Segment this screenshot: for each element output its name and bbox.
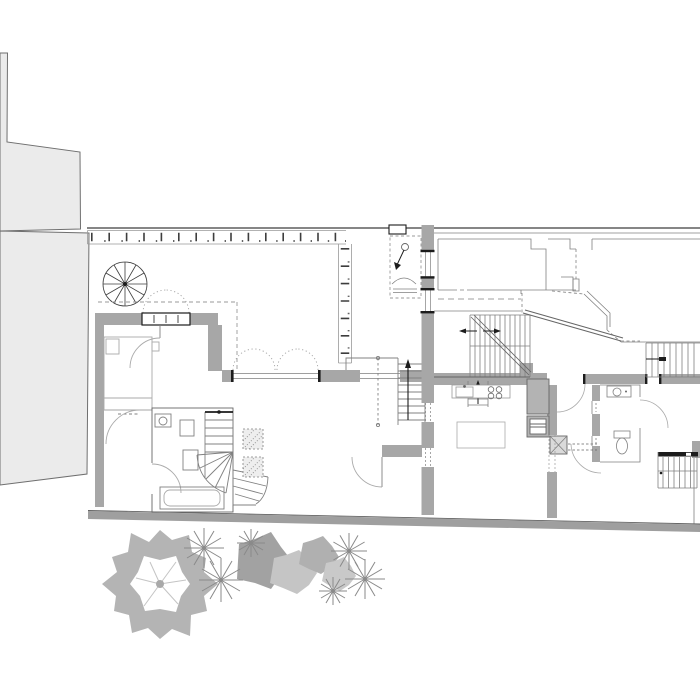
- roof-terrace: [87, 225, 700, 371]
- bed: [104, 337, 159, 410]
- wall-void-divider: [382, 445, 422, 457]
- skylight-planters: [243, 429, 263, 477]
- bedroom-door-arc: [130, 338, 160, 368]
- bathroom-door-arc: [152, 464, 181, 493]
- hall-door-arc: [106, 410, 140, 444]
- left-flat-interior: [104, 325, 425, 512]
- stair-arrow-up: [405, 359, 411, 368]
- small-basin-bowl: [613, 388, 621, 396]
- spiral-stair: [103, 262, 147, 306]
- floor-plan-image: architectural ground floor plan with roo…: [0, 0, 700, 700]
- bedroom-window: [142, 313, 190, 325]
- garden-boundary-wall: [88, 511, 700, 532]
- neighbor-lower-block: [0, 231, 89, 485]
- neighbor-upper-block: [0, 53, 81, 231]
- roof-hatch-symbol: [389, 225, 421, 298]
- small-bathroom: [592, 385, 668, 462]
- bath-cabinet-2: [183, 450, 198, 470]
- kitchen-island: [457, 422, 505, 448]
- palm-2: [199, 558, 243, 602]
- palm-5: [345, 559, 385, 599]
- bathroom: [150, 408, 233, 512]
- bath-pier-1: [592, 385, 600, 401]
- west-wall-seg3: [422, 312, 435, 403]
- internal-stair: [346, 356, 425, 426]
- wall-north-b: [190, 313, 218, 325]
- west-wall-seg1: [422, 225, 435, 252]
- right-flat-north-a: [585, 374, 645, 384]
- washbasin-bowl: [159, 417, 167, 425]
- party-wall-b: [547, 472, 557, 518]
- upper-floor-outline: [434, 239, 700, 342]
- bath-cabinet-1: [180, 420, 194, 436]
- void-door-arc: [352, 457, 382, 487]
- wall-south-b: [318, 370, 360, 382]
- kitchen-faucet: [463, 385, 466, 388]
- kitchen-north-wall: [434, 373, 530, 385]
- bath-pier-2: [592, 414, 600, 436]
- kitchen: [452, 379, 597, 454]
- wall-west: [95, 313, 104, 507]
- west-wall-seg4: [422, 422, 435, 448]
- tree-trunk: [156, 580, 164, 588]
- living-room-window: [360, 370, 400, 382]
- wall-jog: [208, 325, 222, 371]
- floor-plan-svg: architectural ground floor plan with roo…: [0, 0, 700, 700]
- hall-door-arc-1: [557, 384, 585, 412]
- garden: [88, 511, 700, 640]
- stair-arrow-left: [459, 329, 466, 334]
- west-wall-seg5: [422, 467, 435, 515]
- wall-north-a: [95, 313, 142, 325]
- folding-terrace-door: [231, 370, 321, 382]
- upper-right-staircase: [646, 343, 700, 377]
- floor-grille: [550, 436, 567, 454]
- wall-south-c: [400, 370, 423, 382]
- bath-pier-3: [592, 446, 600, 462]
- bath-door-arc: [640, 400, 668, 428]
- toilet: [614, 431, 630, 454]
- neighboring-building-mass: [0, 53, 89, 485]
- bathtub: [160, 487, 224, 509]
- tall-units: [527, 379, 549, 437]
